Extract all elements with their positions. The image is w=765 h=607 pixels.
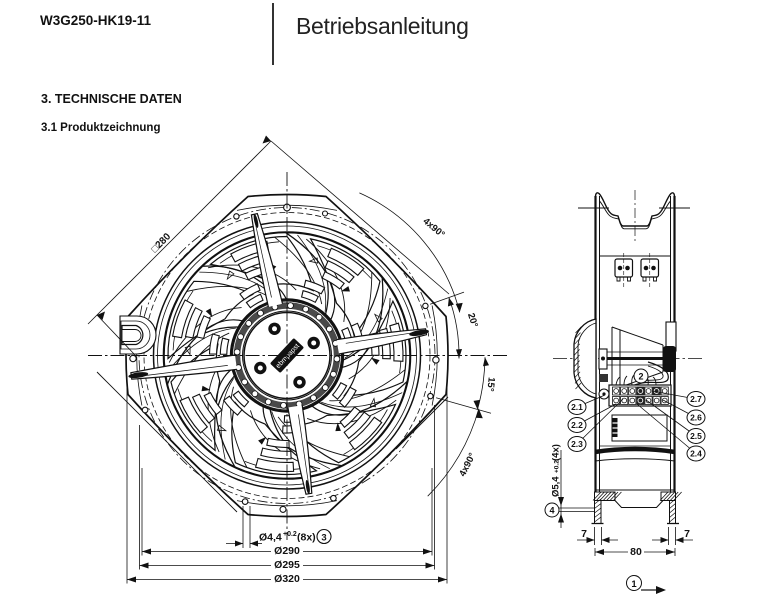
svg-text:2.3: 2.3 <box>571 439 583 449</box>
svg-text:2: 2 <box>638 372 643 382</box>
svg-text:Ø5,4: Ø5,4 <box>551 476 562 497</box>
svg-text:15°: 15° <box>484 377 496 393</box>
svg-text:2.1: 2.1 <box>571 402 583 412</box>
svg-text:20°: 20° <box>465 312 480 329</box>
svg-text:80: 80 <box>630 546 642 558</box>
svg-text:(4x): (4x) <box>551 444 562 461</box>
svg-text:+0.2: +0.2 <box>283 531 297 538</box>
svg-text:Ø320: Ø320 <box>274 573 300 585</box>
svg-text:1: 1 <box>631 579 637 590</box>
svg-text:7: 7 <box>684 528 690 540</box>
svg-text:3: 3 <box>321 533 326 544</box>
svg-text:(8x): (8x) <box>297 532 316 544</box>
svg-text:Ø290: Ø290 <box>274 545 300 557</box>
svg-text:Ø4,4: Ø4,4 <box>259 532 282 544</box>
svg-text:4x90°: 4x90° <box>457 451 478 478</box>
svg-text:2.7: 2.7 <box>690 394 702 404</box>
svg-text:4: 4 <box>549 506 554 516</box>
svg-text:4x90°: 4x90° <box>421 216 447 241</box>
svg-text:2.4: 2.4 <box>690 449 702 459</box>
svg-text:7: 7 <box>581 528 587 540</box>
svg-text:□280: □280 <box>149 231 173 255</box>
svg-text:2.2: 2.2 <box>571 420 583 430</box>
svg-text:2.5: 2.5 <box>690 431 702 441</box>
svg-text:Ø295: Ø295 <box>274 559 300 571</box>
svg-text:2.6: 2.6 <box>690 413 702 423</box>
